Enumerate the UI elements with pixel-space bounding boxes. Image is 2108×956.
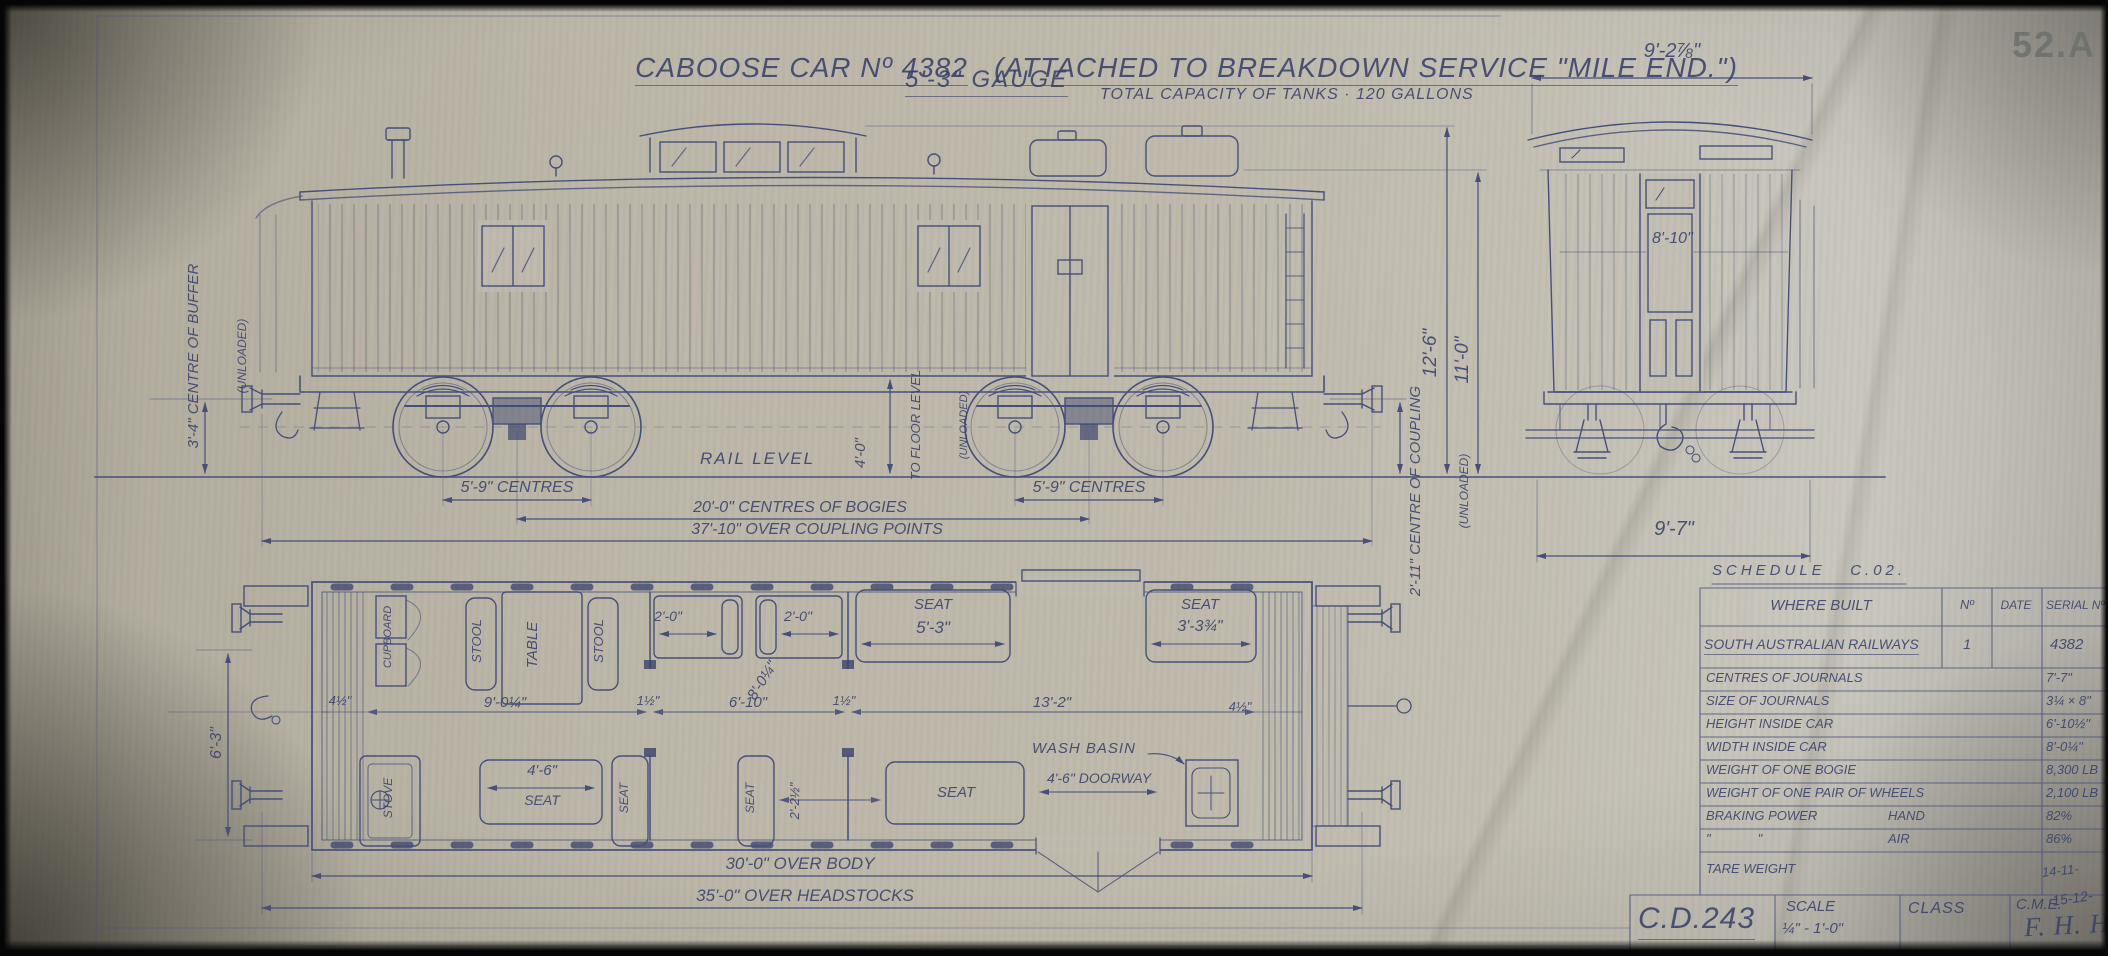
plan-label-seat-5: SEAT: [744, 756, 758, 840]
photographed-blueprint: CABOOSE CAR Nº 4382 (ATTACHED TO BREAKDO…: [0, 0, 2108, 956]
plan-dim-over-body: 30'-0" OVER BODY: [650, 854, 950, 874]
schedule-row-label: WEIGHT OF ONE BOGIE: [1706, 763, 1856, 778]
label-rail-level: RAIL LEVEL: [700, 449, 815, 469]
plan-label-seat-4: SEAT: [618, 756, 632, 840]
dim-buffer-centre-sub: (UNLOADED): [236, 236, 250, 476]
schedule-row-sub: AIR: [1888, 832, 1910, 847]
plan-dim-doorway: 4'-6" DOORWAY: [1024, 770, 1174, 786]
plan-label-seat-1: SEAT: [870, 596, 996, 613]
schedule-builder-name: SOUTH AUSTRALIAN RAILWAYS: [1704, 636, 1919, 655]
label-floor-level-text: TO FLOOR LEVEL: [909, 360, 924, 490]
schedule-row-label: " ": [1706, 832, 1762, 847]
schedule-row-label: TARE WEIGHT: [1706, 862, 1795, 877]
label-floor-level-sub: (UNLOADED): [958, 360, 971, 490]
schedule-row-label: SIZE OF JOURNALS: [1706, 694, 1829, 709]
plan-label-cupboard: CUPBOARD: [382, 598, 395, 676]
dim-coupling-points: 37'-10" OVER COUPLING POINTS: [672, 521, 962, 539]
plan-label-stool-2: STOOL: [592, 598, 607, 684]
plan-dim-room-1: 9'-0¼": [455, 694, 555, 711]
sheet-number: 52.A: [2012, 24, 2096, 65]
plan-label-seat-2: SEAT: [1150, 596, 1250, 613]
schedule-heading: SCHEDULE C.02.: [1712, 562, 1906, 579]
schedule-col-date: DATE: [1990, 599, 2042, 613]
schedule-row-value: 86%: [2046, 832, 2072, 847]
schedule-col-where-built: WHERE BUILT: [1700, 597, 1942, 614]
schedule-row-value: 6'-10½": [2046, 717, 2090, 732]
dim-end-width-inside: 8'-10": [1652, 230, 1693, 248]
plan-label-stove: STOVE: [382, 756, 396, 840]
class-label: CLASS: [1908, 900, 1965, 918]
label-floor-level: TO FLOOR LEVEL (UNLOADED): [874, 360, 1005, 490]
plan-dim-locker-2: 2'-0": [768, 608, 828, 624]
dim-buffer-centre-text: 3'-4" CENTRE OF BUFFER: [185, 236, 202, 476]
dim-end-width-top: 9'-2⅞": [1610, 40, 1734, 63]
plan-label-seat-3: SEAT: [490, 792, 594, 808]
gauge-label: 5'-3" GAUGE: [905, 66, 1068, 97]
schedule-row-label: HEIGHT INSIDE CAR: [1706, 717, 1833, 732]
schedule-row-value: 8,300 LB: [2046, 763, 2098, 778]
dim-floor-height: 4'-0": [852, 438, 869, 468]
schedule-col-number: Nº: [1942, 598, 1992, 613]
schedule-builder-serial: 4382: [2050, 636, 2083, 653]
plan-label-table: TABLE: [524, 596, 541, 694]
dim-bogie-centres-left: 5'-9" CENTRES: [447, 479, 587, 497]
plan-dim-height: 6'-3": [208, 700, 226, 786]
plan-dim-room-3: 13'-2": [1000, 694, 1104, 711]
plan-dim-seat-3: 4'-6": [490, 762, 594, 779]
schedule-row-value: 8'-0¼": [2046, 740, 2083, 755]
schedule-builder-number: 1: [1942, 636, 1992, 652]
plan-label-seat-6: SEAT: [900, 784, 1012, 801]
schedule-row-label: WEIGHT OF ONE PAIR OF WHEELS: [1706, 786, 1924, 801]
plan-dim-over-headstocks: 35'-0" OVER HEADSTOCKS: [640, 886, 970, 906]
drawing-number: C.D.243: [1638, 902, 1755, 940]
plan-dim-wall-left: 4½": [318, 694, 362, 709]
dim-end-width-bottom: 9'-7": [1612, 518, 1736, 541]
plan-dim-seat-1: 5'-3": [870, 618, 996, 638]
schedule-row-value: 3¼ × 8": [2046, 694, 2091, 709]
plan-dim-wall-1: 1½": [626, 694, 670, 709]
note-tank-capacity: TOTAL CAPACITY OF TANKS · 120 GALLONS: [1100, 86, 1474, 104]
plan-dim-wall-right: 4½": [1216, 700, 1264, 715]
schedule-row-label: BRAKING POWER: [1706, 809, 1817, 824]
plan-dim-seat-gap: 2'-2½": [788, 760, 803, 842]
schedule-row-label: WIDTH INSIDE CAR: [1706, 740, 1827, 755]
scale-value: ¼" - 1'-0": [1782, 920, 1843, 937]
schedule-row-value: 82%: [2046, 809, 2072, 824]
dim-buffer-centre: 3'-4" CENTRE OF BUFFER (UNLOADED): [150, 236, 285, 476]
schedule-row-value: 2,100 LB: [2046, 786, 2098, 801]
plan-dim-seat-2: 3'-3¾": [1150, 618, 1250, 636]
schedule-row-label: CENTRES OF JOURNALS: [1706, 671, 1863, 686]
plan-label-stool-1: STOOL: [470, 598, 485, 684]
plan-dim-wall-2: 1½": [822, 694, 866, 709]
schedule-row-value: 7'-7": [2046, 671, 2072, 686]
dim-bogie-centres-right: 5'-9" CENTRES: [1019, 479, 1159, 497]
schedule-row-sub: HAND: [1888, 809, 1925, 824]
dim-height-overall: 12'-6": [1420, 313, 1442, 393]
dim-bogie-spacing: 20'-0" CENTRES OF BOGIES: [680, 499, 920, 517]
dim-height-roof: 11'-0": [1452, 320, 1474, 400]
schedule-col-serial: SERIAL Nº: [2046, 599, 2105, 613]
scale-label: SCALE: [1786, 898, 1835, 915]
plan-dim-locker-1: 2'-0": [638, 608, 698, 624]
plan-label-wash-basin: WASH BASIN: [1032, 740, 1136, 757]
